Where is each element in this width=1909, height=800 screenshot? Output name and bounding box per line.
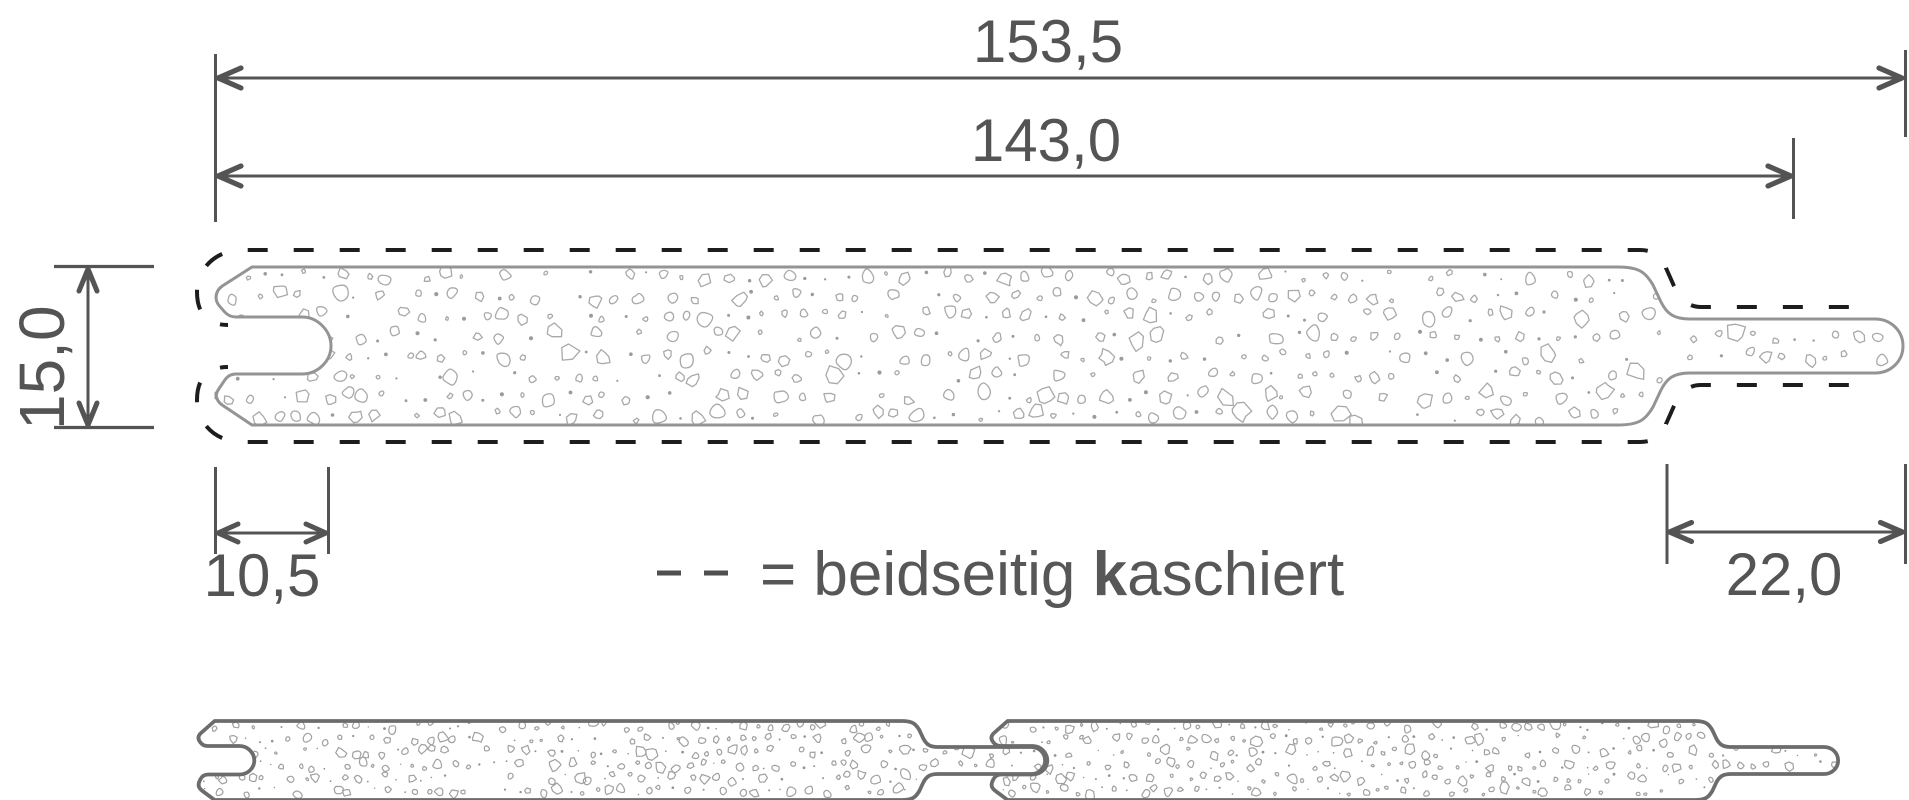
svg-text:153,5: 153,5	[973, 8, 1123, 75]
svg-text:10,5: 10,5	[204, 542, 321, 609]
svg-text:= beidseitig kaschiert: = beidseitig kaschiert	[760, 540, 1344, 609]
svg-text:22,0: 22,0	[1726, 541, 1843, 608]
svg-text:143,0: 143,0	[971, 107, 1121, 174]
svg-text:15,0: 15,0	[6, 305, 78, 430]
